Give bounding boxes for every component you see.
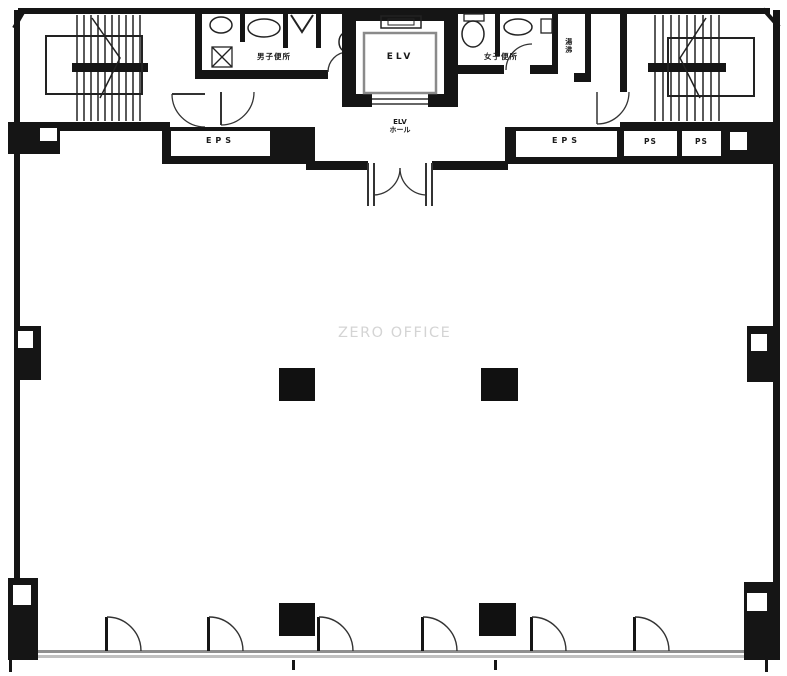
elevator-hall-label: ELV ホール bbox=[378, 118, 422, 135]
washbasin-fixture bbox=[248, 19, 280, 37]
door-swing bbox=[172, 94, 205, 127]
ps-2-label: PS bbox=[682, 138, 721, 146]
washbasin-fixture bbox=[504, 19, 532, 35]
eps-right-label: EPS bbox=[516, 137, 617, 146]
door-swing bbox=[597, 92, 629, 124]
door-swing bbox=[373, 168, 400, 195]
stairwell-right bbox=[620, 14, 773, 131]
column bbox=[279, 603, 315, 636]
entrance-double-door bbox=[368, 163, 432, 206]
elevator-hall-label-line2: ホール bbox=[378, 126, 422, 134]
ps-1-label: PS bbox=[624, 138, 677, 146]
bottom-door-swings bbox=[105, 617, 669, 651]
elevator-shaft-label: ELV bbox=[372, 53, 428, 63]
hot-water-room-label: 湯沸 bbox=[564, 24, 572, 68]
men-toilet-room bbox=[195, 14, 351, 79]
stairwell-left bbox=[18, 14, 202, 131]
elevator-car-outline bbox=[364, 33, 436, 93]
interior-columns bbox=[279, 368, 518, 636]
shelf-fixture bbox=[541, 19, 552, 33]
urinal-fixture bbox=[291, 15, 313, 32]
washbasin-fixture bbox=[210, 17, 232, 33]
floor-plan: 男子便所 女子便所 ELV ELV ホール EPS EPS PS PS 湯沸 Z… bbox=[0, 0, 787, 676]
service-sink-fixture bbox=[212, 47, 232, 67]
column bbox=[481, 368, 518, 401]
toilet-fixture bbox=[462, 21, 484, 47]
elevator-hall bbox=[270, 127, 508, 206]
eps-left-label: EPS bbox=[171, 137, 270, 146]
women-toilet-room bbox=[452, 14, 558, 74]
corridor-doors bbox=[172, 92, 254, 127]
elevator-hall-label-line1: ELV bbox=[378, 118, 422, 126]
stair-direction-arrow bbox=[92, 18, 120, 98]
watermark: ZERO OFFICE bbox=[338, 325, 468, 341]
women-toilet-label: 女子便所 bbox=[470, 53, 532, 61]
men-toilet-label: 男子便所 bbox=[236, 53, 312, 61]
stair-direction-arrow bbox=[680, 18, 706, 98]
door-swing bbox=[221, 92, 254, 125]
door-swing bbox=[400, 168, 427, 195]
column bbox=[479, 603, 516, 636]
column bbox=[279, 368, 315, 401]
perimeter-pillars bbox=[8, 122, 776, 660]
bottom-exterior-wall bbox=[9, 650, 768, 672]
